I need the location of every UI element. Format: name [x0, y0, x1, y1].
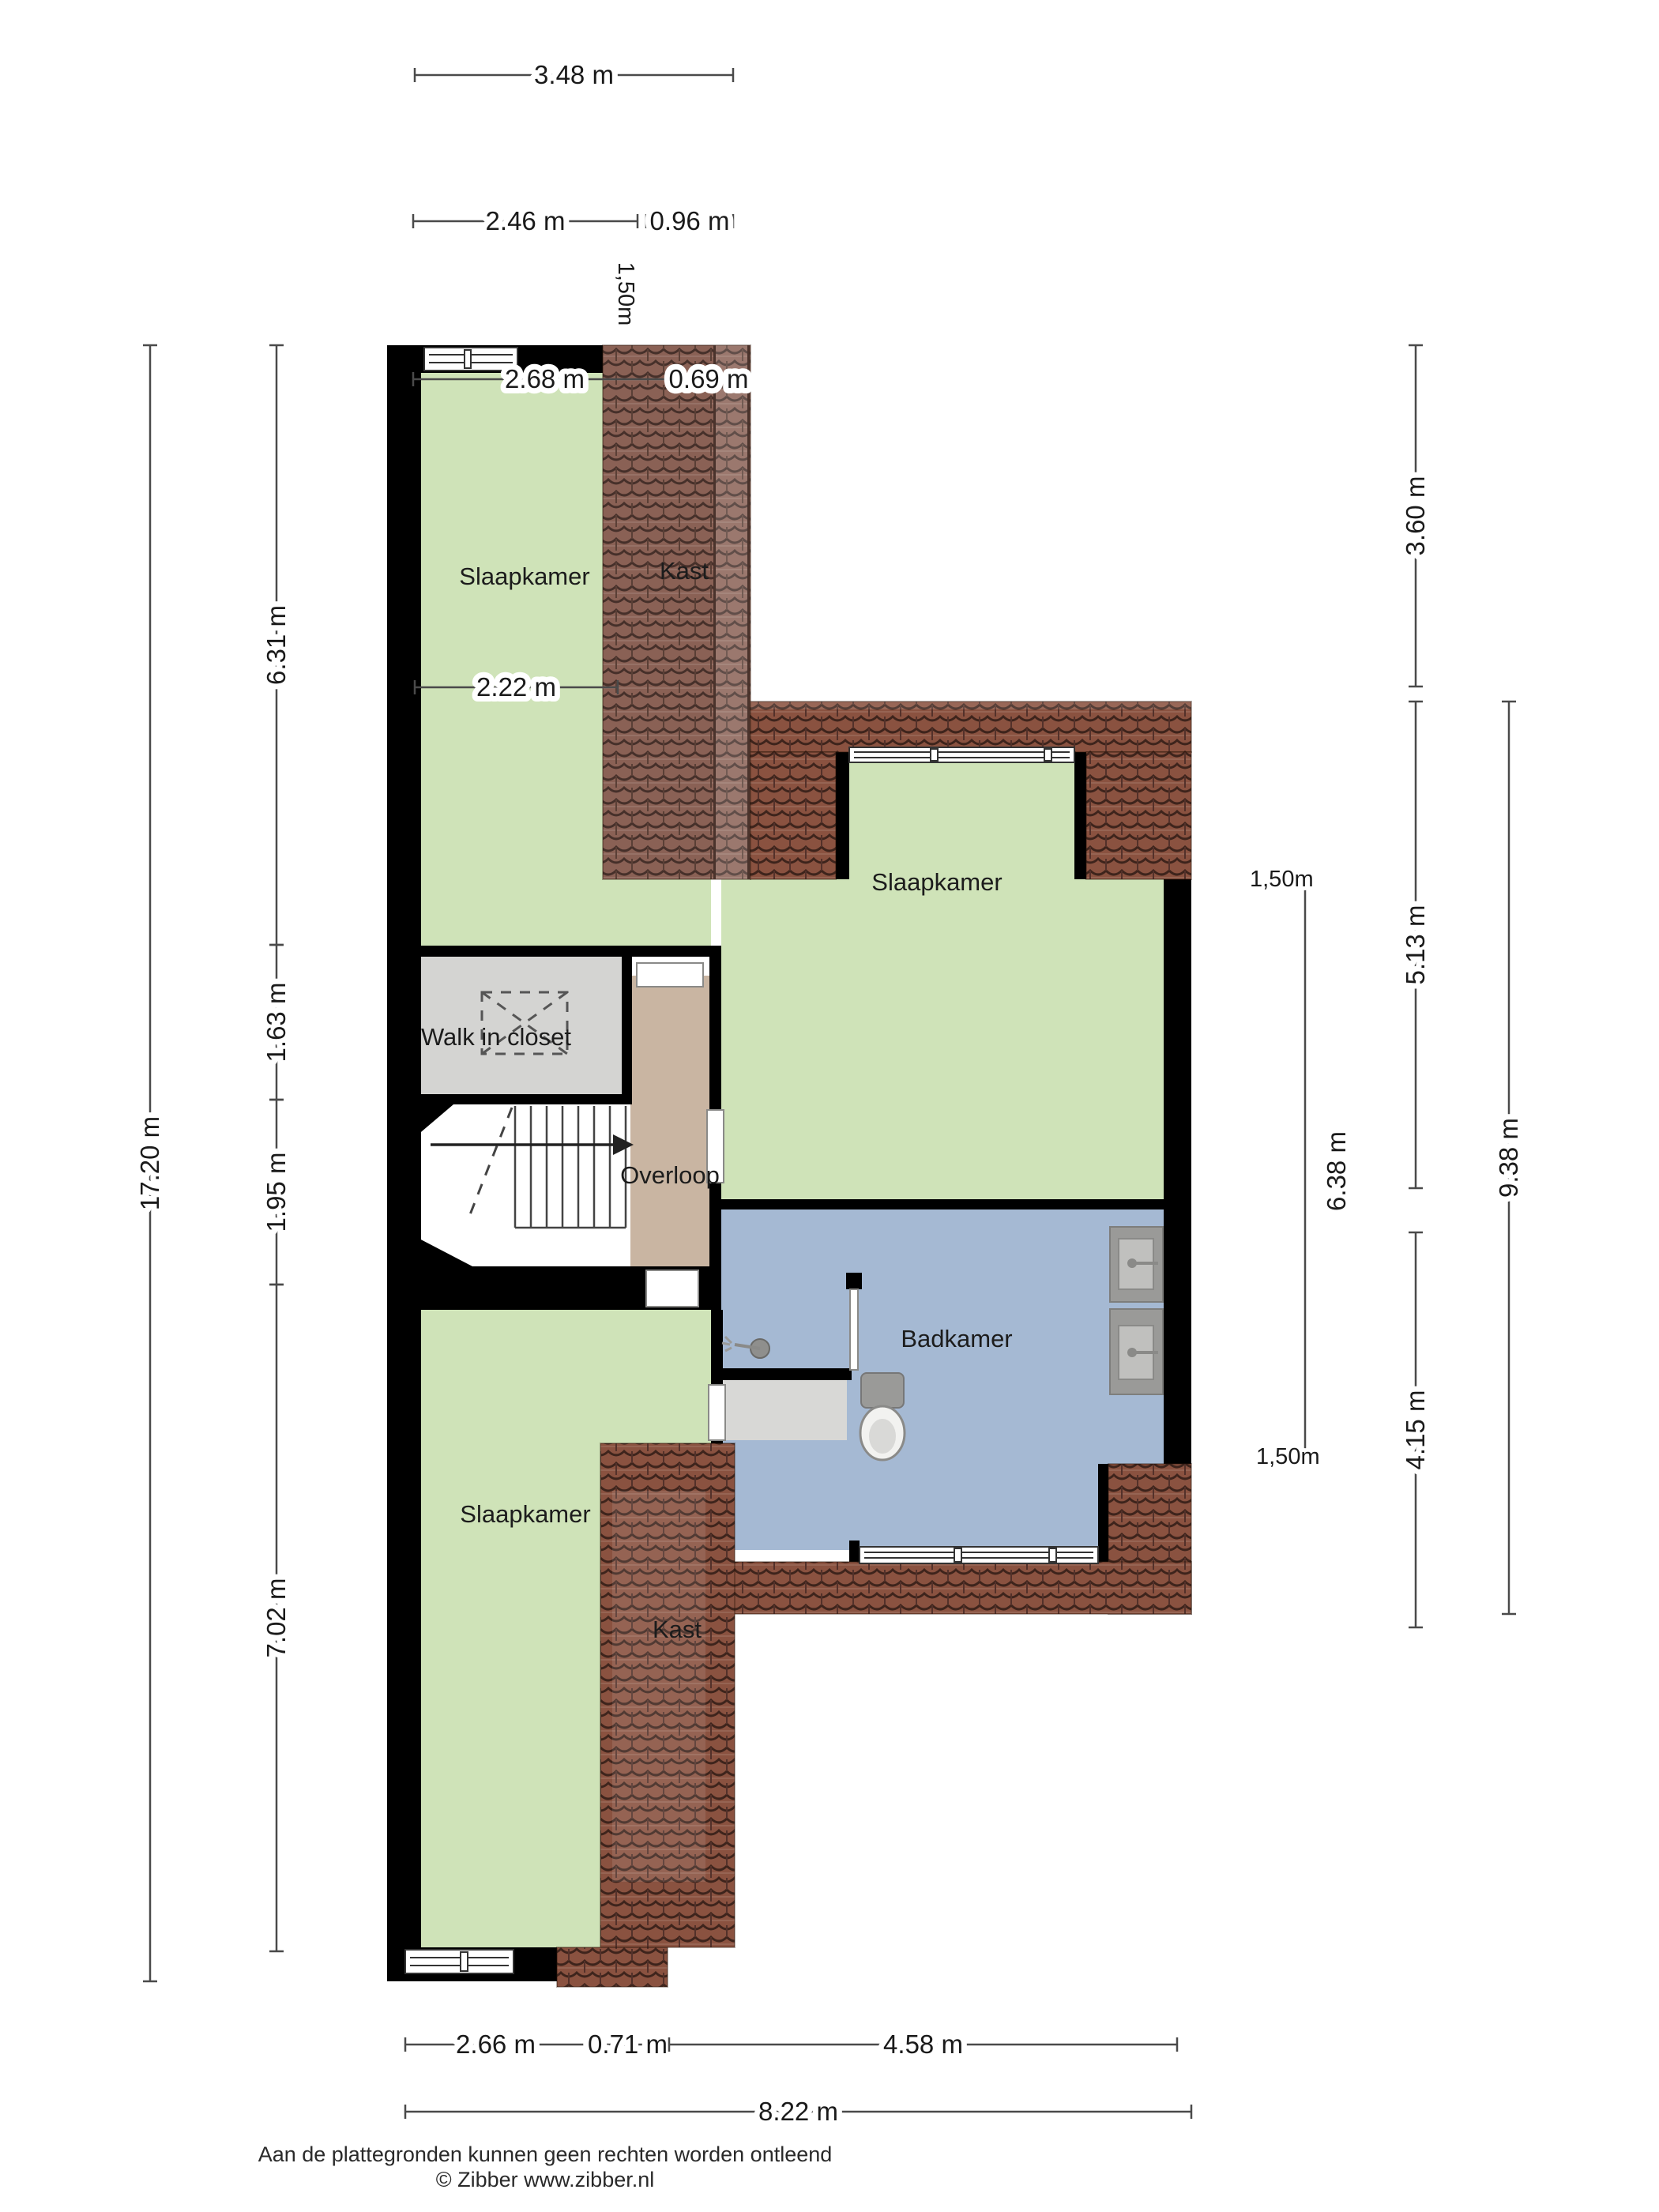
svg-text:6.31 m: 6.31 m [261, 605, 291, 685]
dimension-bottom-0-71: 0.71 m [588, 2030, 668, 2059]
floorplan-canvas: Slaapkamer Kast Slaapkamer Walk in close… [0, 0, 1659, 2212]
svg-text:1,50m: 1,50m [613, 262, 638, 326]
room-overloop [630, 976, 709, 1266]
stairwell-floor [421, 1104, 630, 1266]
svg-text:4.58 m: 4.58 m [883, 2030, 963, 2059]
label-badkamer: Badkamer [901, 1325, 1012, 1352]
svg-text:9.38 m: 9.38 m [1494, 1118, 1523, 1198]
svg-text:3.60 m: 3.60 m [1401, 476, 1430, 556]
roof-ridge-line-b [747, 345, 750, 879]
svg-text:5.13 m: 5.13 m [1401, 905, 1430, 985]
wall-closet-bottom [387, 1094, 632, 1104]
roof-ridge-highlight-top [715, 345, 748, 879]
svg-text:2.66 m: 2.66 m [456, 2030, 536, 2059]
dimension-left-17-20: 17.20 m [135, 345, 164, 1981]
wall-badkamer-partition [721, 1368, 852, 1380]
wall-badkamer-window-stub-left [849, 1540, 860, 1563]
wall-bedroom2-right-stub [1074, 744, 1086, 879]
dimension-right-6-38: 6.38 m [1298, 878, 1351, 1464]
label-slaapkamer-top: Slaapkamer [459, 562, 589, 590]
label-kast-top: Kast [660, 557, 709, 585]
wall-wing-right [1164, 879, 1191, 1464]
dimension-top-3-48: 3.48 m [415, 60, 733, 89]
svg-text:1,50m: 1,50m [1256, 1444, 1320, 1469]
wall-overloop-right-upper [709, 946, 721, 1110]
svg-text:3.48 m: 3.48 m [534, 60, 614, 89]
annotation-roof-height-top: 1,50m [613, 262, 638, 326]
footer: Aan de plattegronden kunnen geen rechten… [258, 2142, 833, 2191]
annotation-roof-height-right-lower: 1,50m [1256, 1444, 1320, 1469]
shower-floor [723, 1380, 847, 1440]
svg-text:1.95 m: 1.95 m [261, 1153, 291, 1232]
annotation-roof-height-right-upper: 1,50m [1250, 867, 1314, 892]
roof-ridge-line-a [713, 345, 716, 879]
label-overloop: Overloop [620, 1161, 720, 1189]
window-badkamer-bottom [860, 1547, 1098, 1563]
wall-partition-stub [846, 1273, 862, 1289]
svg-text:6.38 m: 6.38 m [1322, 1131, 1351, 1211]
wall-bedroom2-left-stub [836, 744, 849, 879]
dimension-top-0-69: 0.69 m [669, 364, 749, 393]
svg-text:4.15 m: 4.15 m [1401, 1390, 1430, 1470]
dimension-bottom-8-22: 8.22 m [405, 2097, 1191, 2126]
dimension-bottom-4-58: 4.58 m [669, 2030, 1177, 2059]
svg-text:0.69 m: 0.69 m [669, 364, 749, 393]
wall-badkamer-window-stub-right [1098, 1464, 1108, 1563]
svg-text:2.46 m: 2.46 m [486, 206, 566, 235]
dimension-top-0-96: 0.96 m [646, 206, 733, 235]
sink-vanity-bottom [1110, 1309, 1163, 1394]
wall-closet-right [622, 946, 632, 1094]
dimension-top-2-46: 2.46 m [413, 206, 638, 235]
label-walk-in-closet: Walk in closet [421, 1023, 571, 1051]
door-overloop-bottom [646, 1270, 698, 1307]
door-shower-leaf [850, 1289, 858, 1370]
label-kast-bottom: Kast [653, 1616, 702, 1643]
dimension-left-7-02: 7.02 m [261, 1285, 291, 1951]
label-slaapkamer-right: Slaapkamer [871, 868, 1002, 896]
svg-text:0.96 m: 0.96 m [650, 206, 730, 235]
dimension-left-1-95: 1.95 m [261, 1100, 291, 1285]
roof-right-of-bedroom2 [1086, 752, 1191, 879]
roof-kast-bottom-strip [557, 1947, 668, 1987]
door-overloop-top [637, 963, 703, 987]
roof-notch-left-of-bedroom2 [750, 752, 836, 879]
window-bedroom2-top [849, 747, 1074, 762]
svg-text:17.20 m: 17.20 m [135, 1116, 164, 1210]
window-bedroom1-top [424, 348, 517, 371]
footer-copyright: © Zibber www.zibber.nl [436, 2168, 655, 2191]
dimension-right-9-38: 9.38 m [1494, 702, 1523, 1614]
dimension-right-3-60: 3.60 m [1401, 345, 1430, 687]
dimension-left-6-31: 6.31 m [261, 345, 291, 945]
svg-text:8.22 m: 8.22 m [758, 2097, 838, 2126]
window-bedroom3-bottom [405, 1950, 513, 1973]
svg-text:2.68 m: 2.68 m [505, 364, 585, 393]
wall-overloop-right-lower [709, 1183, 721, 1266]
roof-eave-highlight [750, 702, 1191, 709]
footer-disclaimer: Aan de plattegronden kunnen geen rechten… [258, 2142, 833, 2166]
roof-kast-bottom-inner [612, 1491, 705, 1882]
door-bedroom3-badkamer [709, 1385, 725, 1440]
dimension-left-1-63: 1.63 m [261, 945, 291, 1100]
dimension-right-5-13: 5.13 m [1401, 702, 1430, 1188]
svg-text:1.63 m: 1.63 m [261, 983, 291, 1063]
svg-text:1,50m: 1,50m [1250, 867, 1314, 892]
toilet [860, 1373, 905, 1460]
label-slaapkamer-bottom: Slaapkamer [460, 1500, 590, 1528]
dimension-right-4-15: 4.15 m [1401, 1232, 1430, 1627]
svg-text:2.22 m: 2.22 m [476, 672, 556, 702]
wall-badkamer-top [721, 1199, 1191, 1209]
wall-left-outer [387, 345, 421, 1981]
svg-text:0.71 m: 0.71 m [588, 2030, 668, 2059]
roof-bottom-band [721, 1562, 1191, 1614]
svg-text:7.02 m: 7.02 m [261, 1578, 291, 1658]
dimension-bottom-2-66: 2.66 m [405, 2030, 586, 2059]
wall-bedroom3-right-upper [711, 1310, 723, 1385]
rooms-layer [421, 373, 1164, 1947]
sink-vanity-top [1110, 1227, 1163, 1302]
wall-closet-top [387, 946, 721, 957]
